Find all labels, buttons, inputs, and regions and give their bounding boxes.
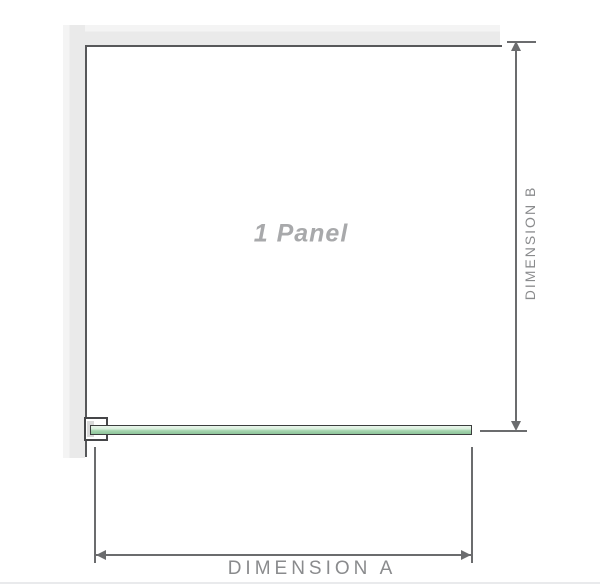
dimension-a-line <box>96 554 471 556</box>
top-wall <box>63 25 500 45</box>
bottom-edge-line <box>0 582 600 584</box>
panel-outline-left <box>85 45 87 457</box>
shower-panel-dimension-diagram: 1 Panel DIMENSION B DIMENSION A <box>0 0 600 588</box>
dimension-a-arrowhead-right-icon <box>461 550 471 560</box>
dimension-b-arrowhead-top-icon <box>511 41 521 51</box>
side-wall <box>63 25 85 458</box>
dimension-b-line <box>515 44 517 429</box>
glass-panel <box>90 425 472 435</box>
dimension-a-extension-right <box>471 447 473 563</box>
dimension-a-arrowhead-left-icon <box>96 550 106 560</box>
dimension-a-label: DIMENSION A <box>228 558 397 580</box>
dimension-b-arrowhead-bottom-icon <box>511 421 521 431</box>
dimension-b-label: DIMENSION B <box>522 186 538 301</box>
panel-count-label: 1 Panel <box>254 220 349 249</box>
dimension-a-extension-left <box>94 447 96 563</box>
panel-outline-top <box>85 45 502 47</box>
